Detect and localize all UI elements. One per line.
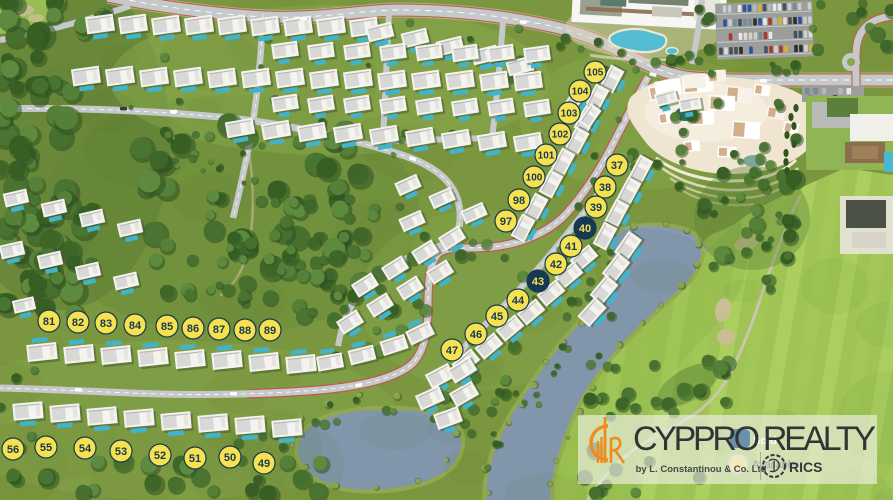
svg-text:102: 102 — [552, 130, 569, 141]
svg-text:88: 88 — [239, 325, 251, 337]
svg-text:103: 103 — [561, 109, 578, 120]
svg-text:49: 49 — [258, 458, 270, 470]
svg-text:50: 50 — [224, 452, 236, 464]
svg-text:41: 41 — [565, 241, 577, 253]
svg-text:81: 81 — [43, 316, 55, 328]
svg-text:83: 83 — [100, 318, 112, 330]
svg-text:55: 55 — [40, 442, 52, 454]
svg-text:51: 51 — [189, 453, 201, 465]
svg-text:37: 37 — [611, 160, 623, 172]
svg-text:98: 98 — [513, 195, 525, 207]
svg-text:47: 47 — [446, 345, 458, 357]
svg-text:52: 52 — [154, 450, 166, 462]
svg-text:44: 44 — [512, 295, 525, 307]
svg-text:38: 38 — [599, 182, 611, 194]
svg-text:87: 87 — [213, 324, 225, 336]
svg-text:97: 97 — [500, 216, 512, 228]
svg-text:82: 82 — [72, 317, 84, 329]
svg-text:RICS: RICS — [789, 459, 822, 475]
svg-text:46: 46 — [470, 329, 482, 341]
svg-text:100: 100 — [526, 173, 543, 184]
svg-text:by L. Constantinou & Co. Ltd: by L. Constantinou & Co. Ltd — [636, 464, 767, 475]
svg-text:42: 42 — [550, 259, 562, 271]
svg-text:104: 104 — [572, 87, 589, 98]
svg-text:86: 86 — [187, 323, 199, 335]
svg-text:85: 85 — [161, 321, 173, 333]
svg-text:105: 105 — [587, 68, 604, 79]
svg-text:56: 56 — [7, 444, 19, 456]
svg-text:101: 101 — [538, 151, 555, 162]
svg-text:39: 39 — [590, 202, 602, 214]
svg-text:53: 53 — [115, 446, 127, 458]
svg-text:40: 40 — [579, 223, 591, 235]
svg-text:89: 89 — [264, 325, 276, 337]
svg-text:43: 43 — [532, 276, 544, 288]
svg-text:84: 84 — [129, 320, 142, 332]
svg-text:54: 54 — [79, 443, 92, 455]
svg-text:CYPPRO REALTY: CYPPRO REALTY — [633, 420, 876, 458]
svg-text:45: 45 — [491, 311, 503, 323]
